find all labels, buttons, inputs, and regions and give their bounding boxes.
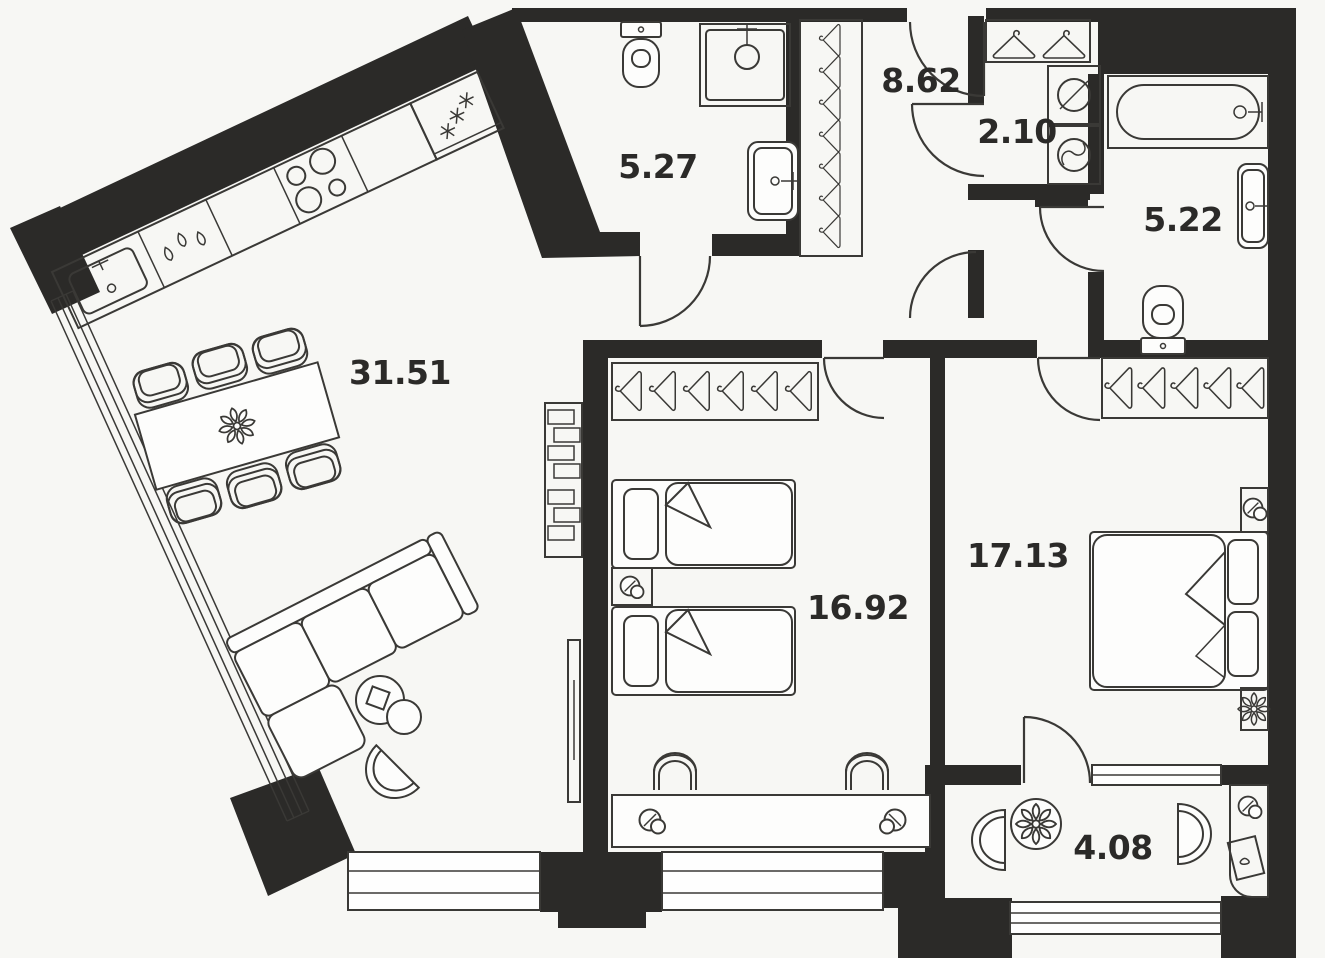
label-bedroom-master: 17.13 bbox=[967, 536, 1069, 575]
single-bed-1 bbox=[612, 480, 795, 568]
window-living-slanted bbox=[51, 291, 309, 821]
single-bed-2 bbox=[612, 607, 795, 695]
shelf-unit bbox=[545, 403, 582, 557]
double-bed bbox=[1090, 532, 1268, 690]
wardrobe bbox=[612, 363, 818, 420]
sofa bbox=[225, 531, 511, 781]
armchair-living bbox=[353, 745, 419, 811]
dining-table-group bbox=[123, 322, 350, 530]
living-room bbox=[123, 322, 582, 811]
door-hallway bbox=[910, 252, 976, 318]
door-bedroom-children bbox=[824, 358, 884, 418]
balcony-railing bbox=[1010, 902, 1221, 934]
label-bathroom-small: 5.27 bbox=[618, 147, 697, 186]
door-balcony bbox=[1024, 717, 1090, 783]
door-bathroom-main bbox=[1040, 207, 1104, 271]
label-bathroom-main: 5.22 bbox=[1143, 200, 1222, 239]
door-bathroom-small bbox=[640, 256, 710, 326]
balcony-armchair-1 bbox=[972, 810, 1005, 870]
floor-plan-svg: 31.51 5.27 8.62 2.10 5.22 16.92 17.13 4.… bbox=[0, 0, 1325, 958]
window-balcony-inner bbox=[1092, 765, 1221, 785]
wardrobe bbox=[1102, 358, 1268, 418]
balcony-armchair-2 bbox=[1178, 804, 1211, 864]
nightstand-lamp bbox=[1241, 488, 1268, 532]
label-hallway: 8.62 bbox=[881, 61, 960, 100]
tv-panel bbox=[568, 640, 580, 802]
window-living-bottom bbox=[348, 852, 540, 910]
hallway-wardrobe bbox=[800, 20, 862, 256]
door-laundry-closet bbox=[912, 104, 984, 176]
washbasin-icon bbox=[1238, 164, 1268, 248]
desk bbox=[612, 753, 930, 847]
bathtub-icon bbox=[1108, 76, 1268, 148]
balcony-side-table bbox=[1228, 785, 1268, 897]
label-living-room: 31.51 bbox=[349, 353, 451, 392]
bedroom-master-furniture bbox=[1090, 358, 1270, 730]
balcony-round-table bbox=[1011, 799, 1061, 849]
laundry-closet-fixtures bbox=[986, 20, 1100, 184]
toilet-icon bbox=[621, 22, 661, 87]
nightstand bbox=[612, 568, 652, 605]
label-bedroom-children: 16.92 bbox=[807, 588, 909, 627]
toilet-icon bbox=[1141, 286, 1185, 354]
coffee-table bbox=[356, 676, 421, 734]
bathroom-small-fixtures bbox=[621, 22, 798, 220]
label-balcony: 4.08 bbox=[1073, 828, 1152, 867]
door-bedroom-master bbox=[1038, 358, 1100, 420]
washbasin-icon bbox=[748, 142, 798, 220]
nightstand-plant bbox=[1238, 688, 1270, 730]
shower-icon bbox=[700, 24, 790, 106]
label-laundry-closet: 2.10 bbox=[977, 112, 1056, 151]
floor-plan-page: 31.51 5.27 8.62 2.10 5.22 16.92 17.13 4.… bbox=[0, 0, 1325, 958]
window-bedroom-children bbox=[662, 852, 883, 910]
dishwasher-icon bbox=[159, 224, 207, 261]
